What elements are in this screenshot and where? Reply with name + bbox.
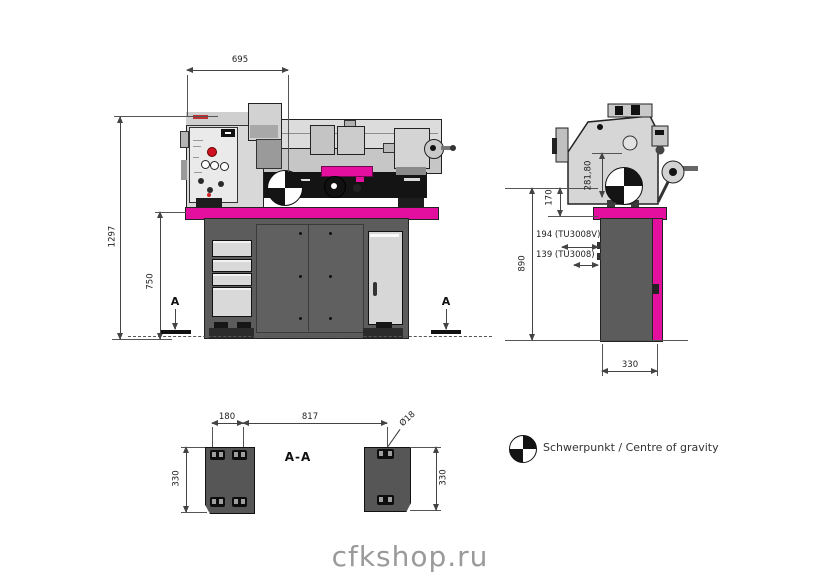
- dim-line-695: [187, 70, 288, 71]
- panel-knob: [201, 160, 210, 169]
- dim-1297: 1297: [109, 217, 118, 257]
- drawer: [212, 240, 252, 257]
- dim-line-180: [212, 423, 243, 424]
- drawer: [212, 287, 252, 317]
- cabinet-door-divider: [308, 224, 309, 331]
- dim-330-left: 330: [173, 459, 182, 499]
- extension-line: [243, 427, 244, 447]
- door-top-strip: [370, 234, 399, 237]
- chuck: [256, 139, 282, 169]
- machine-foot: [398, 198, 424, 207]
- extension-line: [114, 116, 218, 117]
- extension-line: [212, 427, 213, 447]
- extension-line: [112, 339, 172, 340]
- mounting-slot: [377, 449, 394, 459]
- door-handle: [373, 282, 377, 296]
- legend-label: Schwerpunkt / Centre of gravity: [543, 441, 719, 454]
- dim-330-side: 330: [610, 361, 650, 370]
- dim-line-139: [574, 265, 598, 266]
- cross-slide: [321, 166, 373, 177]
- section-arrow-right: [446, 309, 447, 329]
- dim-hole-diameter: Ø18: [393, 405, 423, 433]
- side-handle: [653, 284, 659, 294]
- panel-marking: [194, 172, 202, 173]
- slide-block: [356, 177, 364, 182]
- extension-line: [410, 447, 441, 448]
- dim-line-330-left: [186, 447, 187, 512]
- tailstock-handle-knob: [450, 145, 456, 151]
- bed-marking: [404, 178, 420, 181]
- extension-line: [187, 75, 188, 116]
- panel-lever: [198, 178, 204, 184]
- dim-695: 695: [218, 56, 262, 65]
- machine-foot: [196, 198, 222, 207]
- side-cabinet-accent: [652, 218, 663, 342]
- tailstock-base: [396, 167, 426, 175]
- dim-194-tu3008v: 194 (TU3008V): [536, 231, 600, 240]
- dim-line-170: [560, 188, 561, 216]
- door-screw: [329, 275, 332, 278]
- cabinet-door-right: [368, 231, 403, 325]
- apron-handwheel-hub: [331, 183, 337, 189]
- panel-knob: [210, 161, 219, 170]
- drawer: [212, 259, 252, 272]
- dim-line-194: [562, 247, 598, 248]
- mounting-slot: [377, 495, 394, 505]
- door-screw: [329, 317, 332, 320]
- centre-of-gravity-icon: [605, 167, 643, 205]
- dim-180: 180: [207, 413, 247, 422]
- left-bracket: [180, 131, 189, 148]
- dim-line-330-right: [436, 447, 437, 510]
- dim-170: 170: [546, 183, 555, 213]
- section-marker-a-left: A: [168, 295, 182, 308]
- dim-line-281-80: [602, 153, 603, 197]
- drawer: [212, 273, 252, 286]
- door-screw: [299, 317, 302, 320]
- chuck-guard-lower: [250, 125, 278, 138]
- panel-marking: [193, 157, 199, 158]
- dim-281-80: 281,80: [585, 156, 594, 196]
- dim-817: 817: [290, 413, 330, 422]
- dim-330-right: 330: [440, 458, 449, 498]
- door-screw: [299, 275, 302, 278]
- leader-line: [388, 429, 401, 447]
- ground-line: [128, 336, 492, 337]
- feed-knob: [353, 184, 361, 192]
- door-screw: [299, 232, 302, 235]
- dim-890: 890: [519, 244, 528, 284]
- section-arrow-left: [175, 309, 176, 329]
- left-bracket: [181, 160, 187, 180]
- panel-marking: [193, 146, 201, 147]
- extension-line: [548, 216, 598, 217]
- centre-of-gravity-icon: [267, 170, 303, 206]
- panel-knob: [220, 162, 229, 171]
- tailstock-handwheel-hub: [430, 145, 436, 151]
- emergency-stop-button: [207, 147, 217, 157]
- centre-of-gravity-icon: [509, 435, 537, 463]
- section-marker-a-right: A: [439, 295, 453, 308]
- cabinet-middle-panel: [256, 224, 364, 333]
- mount-tab: [597, 253, 601, 260]
- dim-139-tu3008: 139 (TU3008): [536, 251, 596, 260]
- watermark: cfkshop.ru: [260, 540, 560, 573]
- dim-line-750: [160, 212, 161, 339]
- toolpost: [337, 126, 365, 155]
- extension-line: [410, 510, 441, 511]
- section-plane-left: [161, 330, 191, 334]
- panel-indicator: [207, 193, 211, 197]
- extension-line: [181, 512, 207, 513]
- technical-drawing-lathe-tu3008: 695 1297 750 A A: [0, 0, 820, 580]
- carriage-saddle: [310, 125, 335, 155]
- side-cabinet: [600, 218, 654, 342]
- mounting-slot: [210, 450, 225, 460]
- mounting-slot: [210, 497, 225, 507]
- extension-line: [288, 75, 289, 172]
- panel-marking: [193, 140, 203, 141]
- panel-lever: [218, 181, 224, 187]
- extension-line: [181, 447, 205, 448]
- display-marking: [225, 132, 231, 134]
- dim-750: 750: [147, 262, 156, 302]
- dim-line-890: [532, 188, 533, 340]
- extension-line: [155, 212, 186, 213]
- mounting-slot: [232, 497, 247, 507]
- section-plane-right: [431, 330, 461, 334]
- section-title: A-A: [280, 450, 316, 464]
- dim-line-1297: [120, 117, 121, 339]
- mounting-slot: [232, 450, 247, 460]
- door-screw: [329, 232, 332, 235]
- extension-line: [592, 153, 622, 154]
- dim-line-330-side: [602, 371, 657, 372]
- dim-line-817: [243, 423, 387, 424]
